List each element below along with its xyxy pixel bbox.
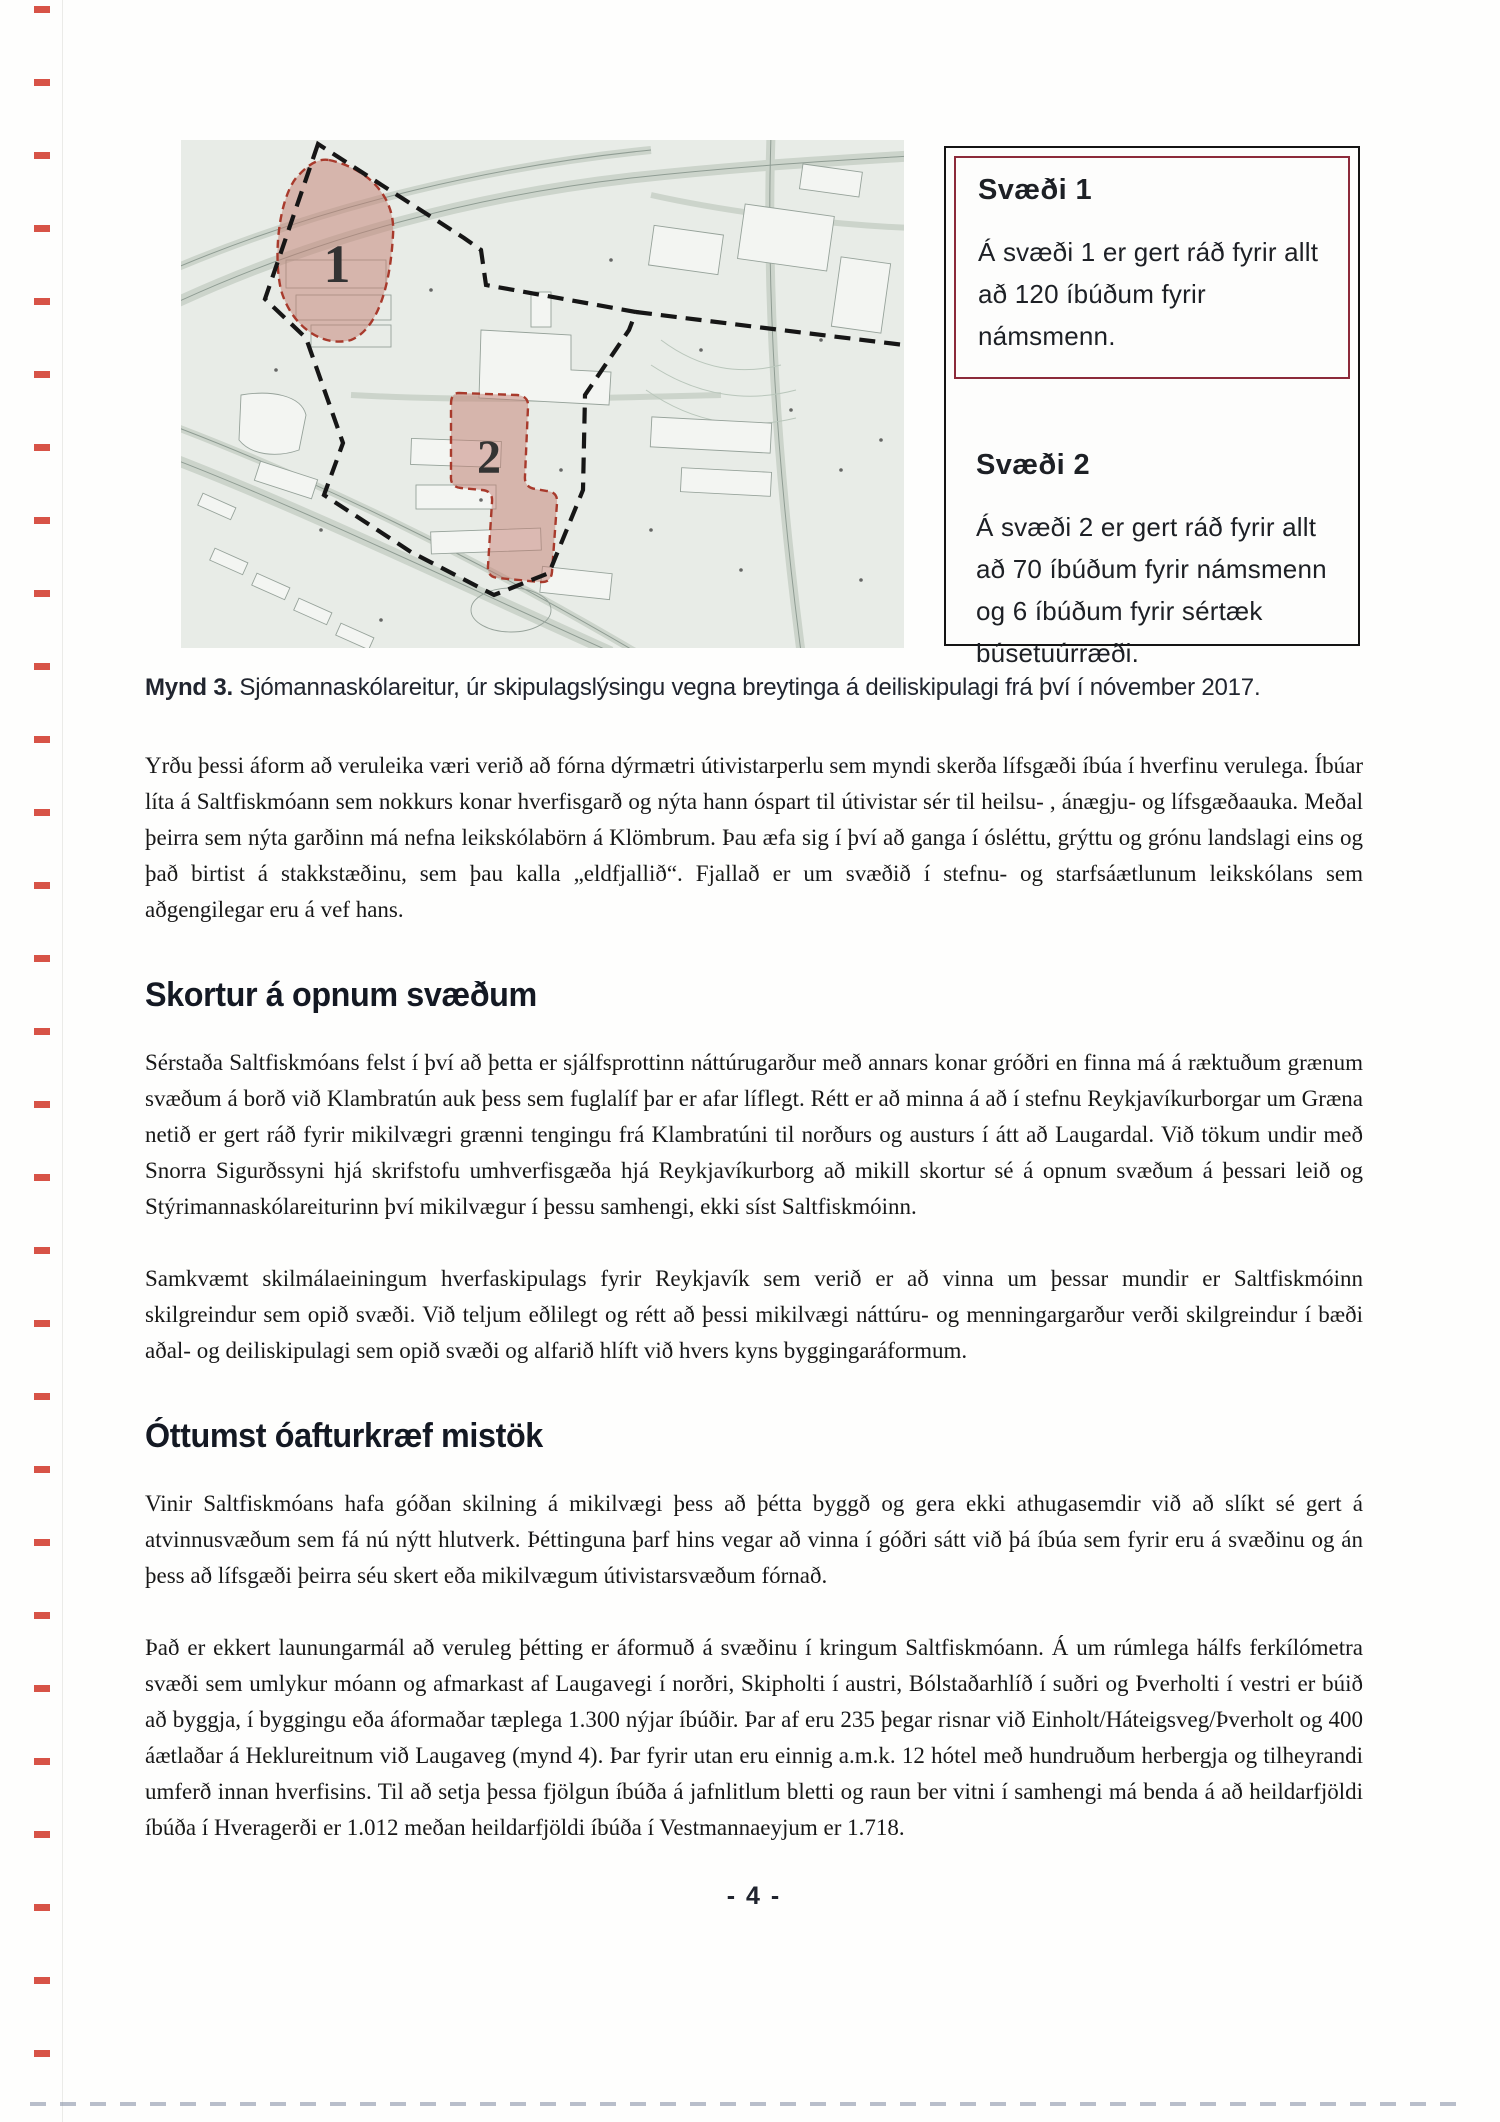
paragraph-3: Samkvæmt skilmálaeiningum hverfaskipulag… <box>145 1261 1363 1369</box>
paragraph-2: Sérstaða Saltfiskmóans felst í því að þe… <box>145 1045 1363 1225</box>
planning-map: 1 2 <box>181 140 904 648</box>
figure-3: 1 2 Svæði 1 Á svæði 1 er gert ráð fyrir … <box>181 140 1360 648</box>
area-1-title: Svæði 1 <box>978 174 1326 207</box>
area-1-label: 1 <box>324 234 351 294</box>
page-number: - 4 - <box>145 1882 1363 1911</box>
document-page: 1 2 Svæði 1 Á svæði 1 er gert ráð fyrir … <box>0 0 1500 2122</box>
area-2-info-box: Svæði 2 Á svæði 2 er gert ráð fyrir allt… <box>976 449 1330 674</box>
figure-caption: Mynd 3. Sjómannaskólareitur, úr skipulag… <box>145 674 1360 702</box>
planning-map-figure: 1 2 <box>181 140 904 648</box>
scan-bottom-dashes <box>30 2102 1470 2106</box>
scan-edge-marks <box>34 6 50 2122</box>
figure-caption-text: Sjómannaskólareitur, úr skipulagslýsingu… <box>233 674 1260 701</box>
paragraph-4: Vinir Saltfiskmóans hafa góðan skilning … <box>145 1486 1363 1594</box>
area-1-info-box: Svæði 1 Á svæði 1 er gert ráð fyrir allt… <box>954 156 1350 379</box>
section-heading-1-text: Skortur á opnum svæðum <box>145 976 537 1015</box>
page-content: 1 2 Svæði 1 Á svæði 1 er gert ráð fyrir … <box>0 140 1500 1911</box>
section-heading-2-text: Óttumst óafturkræf mistök <box>145 1417 543 1456</box>
area-2-title: Svæði 2 <box>976 449 1330 482</box>
scan-edge-line <box>62 0 63 2122</box>
paragraph-5: Það er ekkert launungarmál að veruleg þé… <box>145 1630 1363 1846</box>
area-2-text: Á svæði 2 er gert ráð fyrir allt að 70 í… <box>976 506 1330 674</box>
area-1-text: Á svæði 1 er gert ráð fyrir allt að 120 … <box>978 231 1326 357</box>
paragraph-1: Yrðu þessi áform að veruleika væri verið… <box>145 748 1363 928</box>
legend-box: Svæði 1 Á svæði 1 er gert ráð fyrir allt… <box>944 146 1360 646</box>
figure-caption-label: Mynd 3. <box>145 674 233 701</box>
section-heading-2: Óttumst óafturkræf mistök <box>145 1417 1360 1456</box>
section-heading-1: Skortur á opnum svæðum <box>145 976 1360 1015</box>
area-2-label: 2 <box>477 431 501 484</box>
